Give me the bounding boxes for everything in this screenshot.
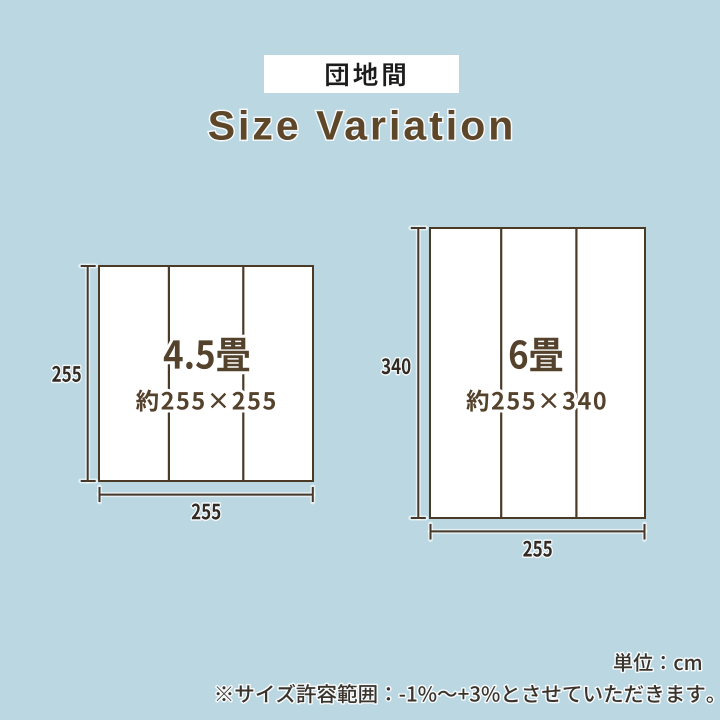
svg-text:Size Variation: Size Variation bbox=[208, 103, 517, 149]
